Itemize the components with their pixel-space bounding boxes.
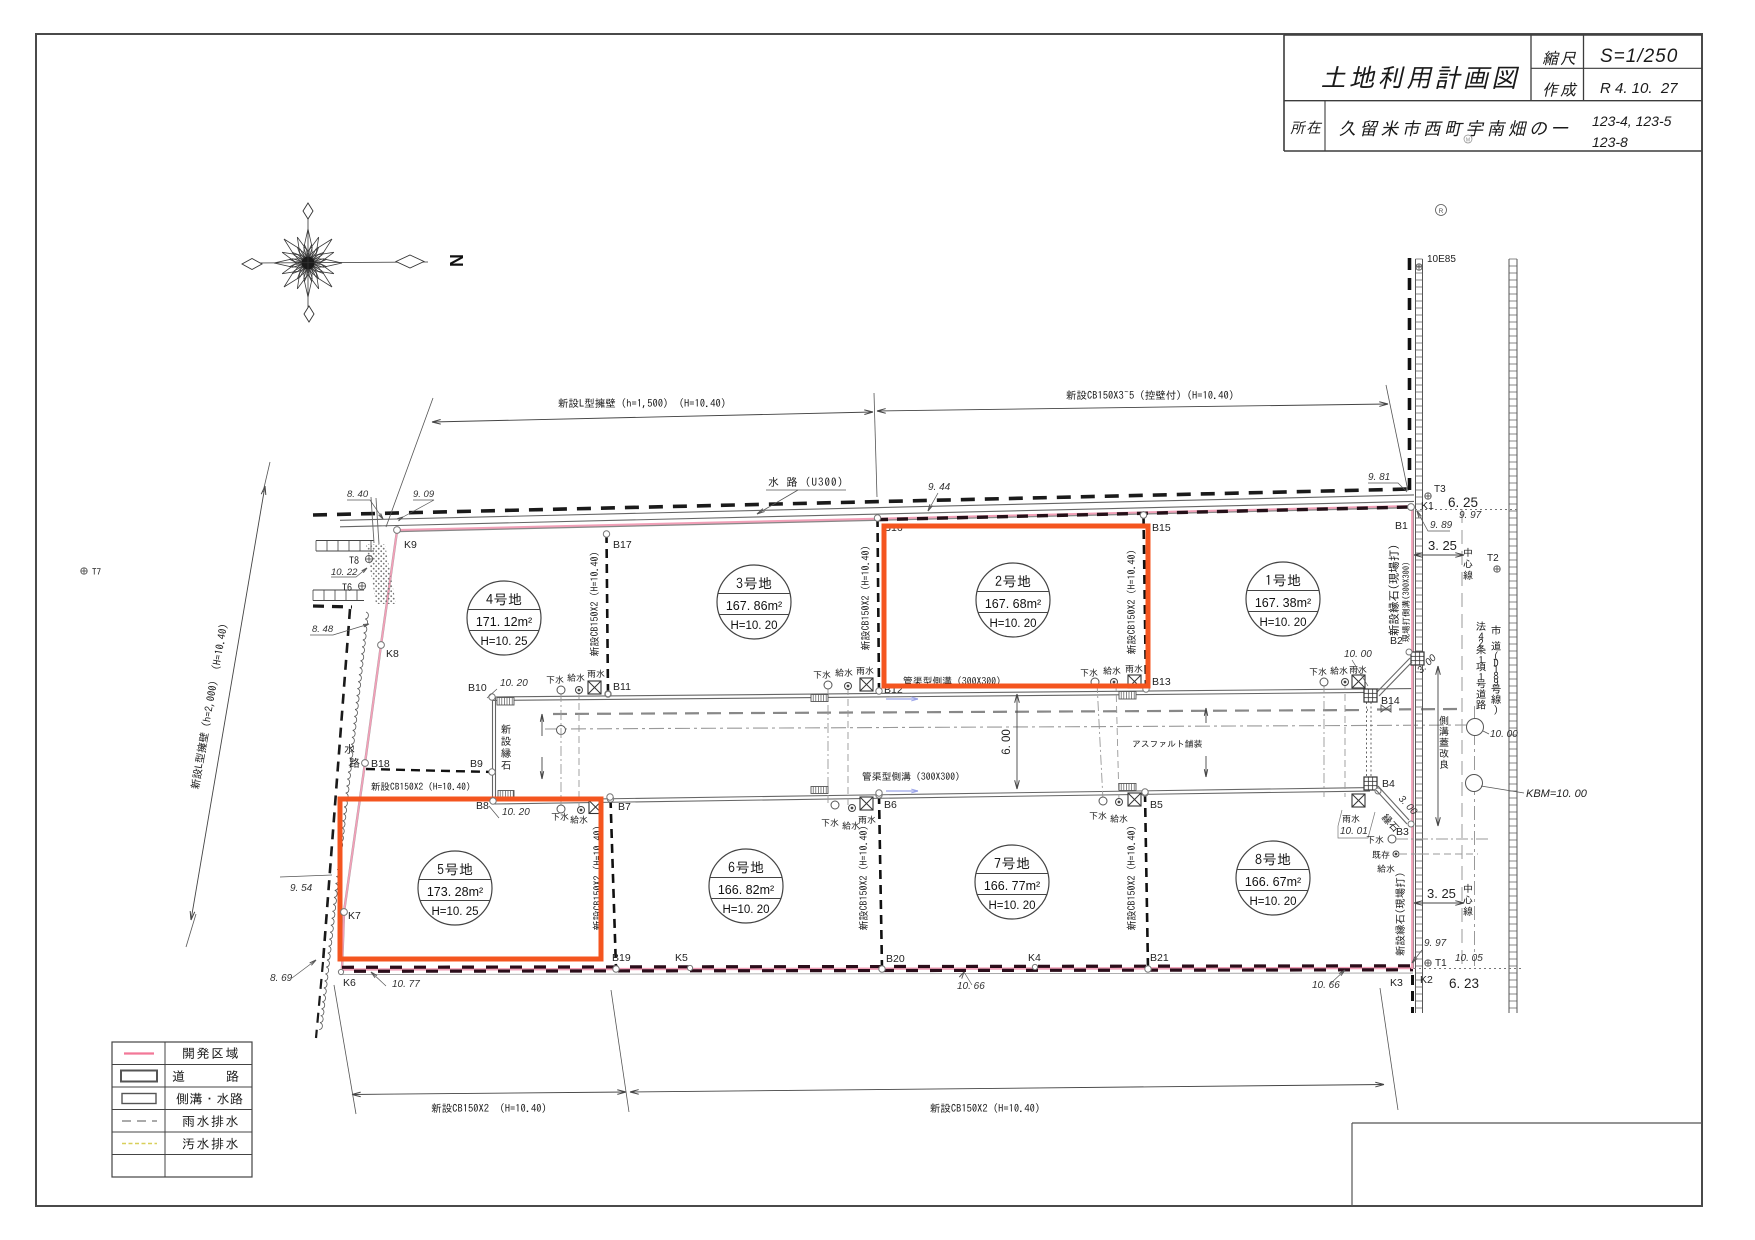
svg-text:B18: B18 xyxy=(371,758,390,770)
svg-text:T1: T1 xyxy=(1435,958,1447,969)
svg-text:B5: B5 xyxy=(1150,799,1163,811)
svg-text:9. 81: 9. 81 xyxy=(1368,472,1390,483)
svg-text:R: R xyxy=(1439,208,1444,215)
svg-text:167. 86m²: 167. 86m² xyxy=(726,599,782,613)
svg-text:H=10. 25: H=10. 25 xyxy=(481,636,528,648)
svg-text:K3: K3 xyxy=(1390,977,1403,989)
svg-text:166. 67m²: 166. 67m² xyxy=(1245,875,1301,889)
svg-text:H=10. 20: H=10. 20 xyxy=(1250,896,1297,908)
svg-text:B3: B3 xyxy=(1396,826,1409,838)
svg-text:K9: K9 xyxy=(404,539,417,551)
svg-text:B15: B15 xyxy=(1152,522,1171,534)
svg-text:166. 77m²: 166. 77m² xyxy=(984,879,1040,893)
svg-text:3. 25: 3. 25 xyxy=(1427,886,1456,901)
svg-text:167. 38m²: 167. 38m² xyxy=(1255,596,1311,610)
svg-text:B8: B8 xyxy=(476,800,489,812)
svg-text:10. 77: 10. 77 xyxy=(392,979,420,990)
svg-text:6. 25: 6. 25 xyxy=(1448,495,1478,510)
svg-text:10. 66: 10. 66 xyxy=(1312,980,1340,991)
svg-text:166. 82m²: 166. 82m² xyxy=(718,883,774,897)
svg-text:123-4, 123-5: 123-4, 123-5 xyxy=(1592,113,1672,129)
svg-text:10. 20: 10. 20 xyxy=(500,678,528,689)
svg-text:K2: K2 xyxy=(1420,974,1433,986)
svg-text:K5: K5 xyxy=(675,952,688,964)
svg-text:9. 09: 9. 09 xyxy=(413,489,435,500)
svg-text:B14: B14 xyxy=(1381,695,1400,707)
svg-text:6. 00: 6. 00 xyxy=(1001,729,1013,755)
svg-text:T3: T3 xyxy=(1434,484,1446,495)
svg-text:B9: B9 xyxy=(470,758,483,770)
svg-text:167. 68m²: 167. 68m² xyxy=(985,597,1041,611)
svg-text:9. 97: 9. 97 xyxy=(1459,510,1482,521)
svg-text:10. 66: 10. 66 xyxy=(957,981,985,992)
svg-text:B7: B7 xyxy=(618,801,631,813)
svg-text:10. 01: 10. 01 xyxy=(1340,826,1368,837)
svg-text:K4: K4 xyxy=(1028,952,1041,964)
svg-text:9. 89: 9. 89 xyxy=(1430,520,1453,531)
svg-text:H=10. 20: H=10. 20 xyxy=(723,904,770,916)
svg-text:8. 69: 8. 69 xyxy=(270,973,293,984)
svg-text:10. 00: 10. 00 xyxy=(1344,649,1372,660)
svg-text:M: M xyxy=(1466,138,1470,144)
svg-text:8. 40: 8. 40 xyxy=(347,489,369,500)
svg-text:H=10. 20: H=10. 20 xyxy=(989,900,1036,912)
svg-text:3. 25: 3. 25 xyxy=(1428,538,1457,553)
svg-text:171. 12m²: 171. 12m² xyxy=(476,615,532,629)
svg-text:B20: B20 xyxy=(886,953,905,965)
svg-text:H=10. 20: H=10. 20 xyxy=(1260,617,1307,629)
svg-text:B17: B17 xyxy=(613,539,632,551)
svg-text:10. 22: 10. 22 xyxy=(331,567,358,578)
svg-text:T2: T2 xyxy=(1487,553,1499,564)
svg-text:10. 20: 10. 20 xyxy=(502,807,530,818)
svg-text:9. 44: 9. 44 xyxy=(928,482,951,493)
svg-text:B4: B4 xyxy=(1382,778,1395,790)
svg-text:R 4. 10. 27: R 4. 10. 27 xyxy=(1600,80,1678,97)
svg-text:10. 00: 10. 00 xyxy=(1490,729,1518,740)
svg-text:H=10. 20: H=10. 20 xyxy=(990,618,1037,630)
svg-text:K6: K6 xyxy=(343,977,356,989)
svg-text:B21: B21 xyxy=(1150,952,1169,964)
svg-text:KBM=10. 00: KBM=10. 00 xyxy=(1526,788,1588,800)
svg-text:K8: K8 xyxy=(386,648,399,660)
svg-text:6. 23: 6. 23 xyxy=(1449,976,1479,991)
svg-text:S=1/250: S=1/250 xyxy=(1600,46,1678,67)
svg-text:B11: B11 xyxy=(613,681,631,693)
svg-text:123-8: 123-8 xyxy=(1592,134,1628,150)
svg-text:173. 28m²: 173. 28m² xyxy=(427,885,483,899)
svg-text:9. 54: 9. 54 xyxy=(290,883,313,894)
svg-text:B10: B10 xyxy=(468,682,487,694)
svg-text:H=10. 20: H=10. 20 xyxy=(731,620,778,632)
svg-text:9. 97: 9. 97 xyxy=(1424,938,1447,949)
svg-text:N: N xyxy=(446,254,466,267)
svg-text:H=10. 25: H=10. 25 xyxy=(432,906,479,918)
svg-text:K1: K1 xyxy=(1421,500,1434,512)
svg-text:B1: B1 xyxy=(1395,520,1408,532)
svg-text:8. 48: 8. 48 xyxy=(312,624,334,635)
svg-text:K7: K7 xyxy=(348,910,361,922)
svg-text:10E85: 10E85 xyxy=(1427,254,1456,265)
svg-text:B6: B6 xyxy=(884,799,897,811)
svg-text:B2: B2 xyxy=(1390,635,1403,647)
svg-text:B19: B19 xyxy=(612,952,631,964)
svg-text:B13: B13 xyxy=(1152,676,1171,688)
svg-text:10. 05: 10. 05 xyxy=(1455,953,1483,964)
